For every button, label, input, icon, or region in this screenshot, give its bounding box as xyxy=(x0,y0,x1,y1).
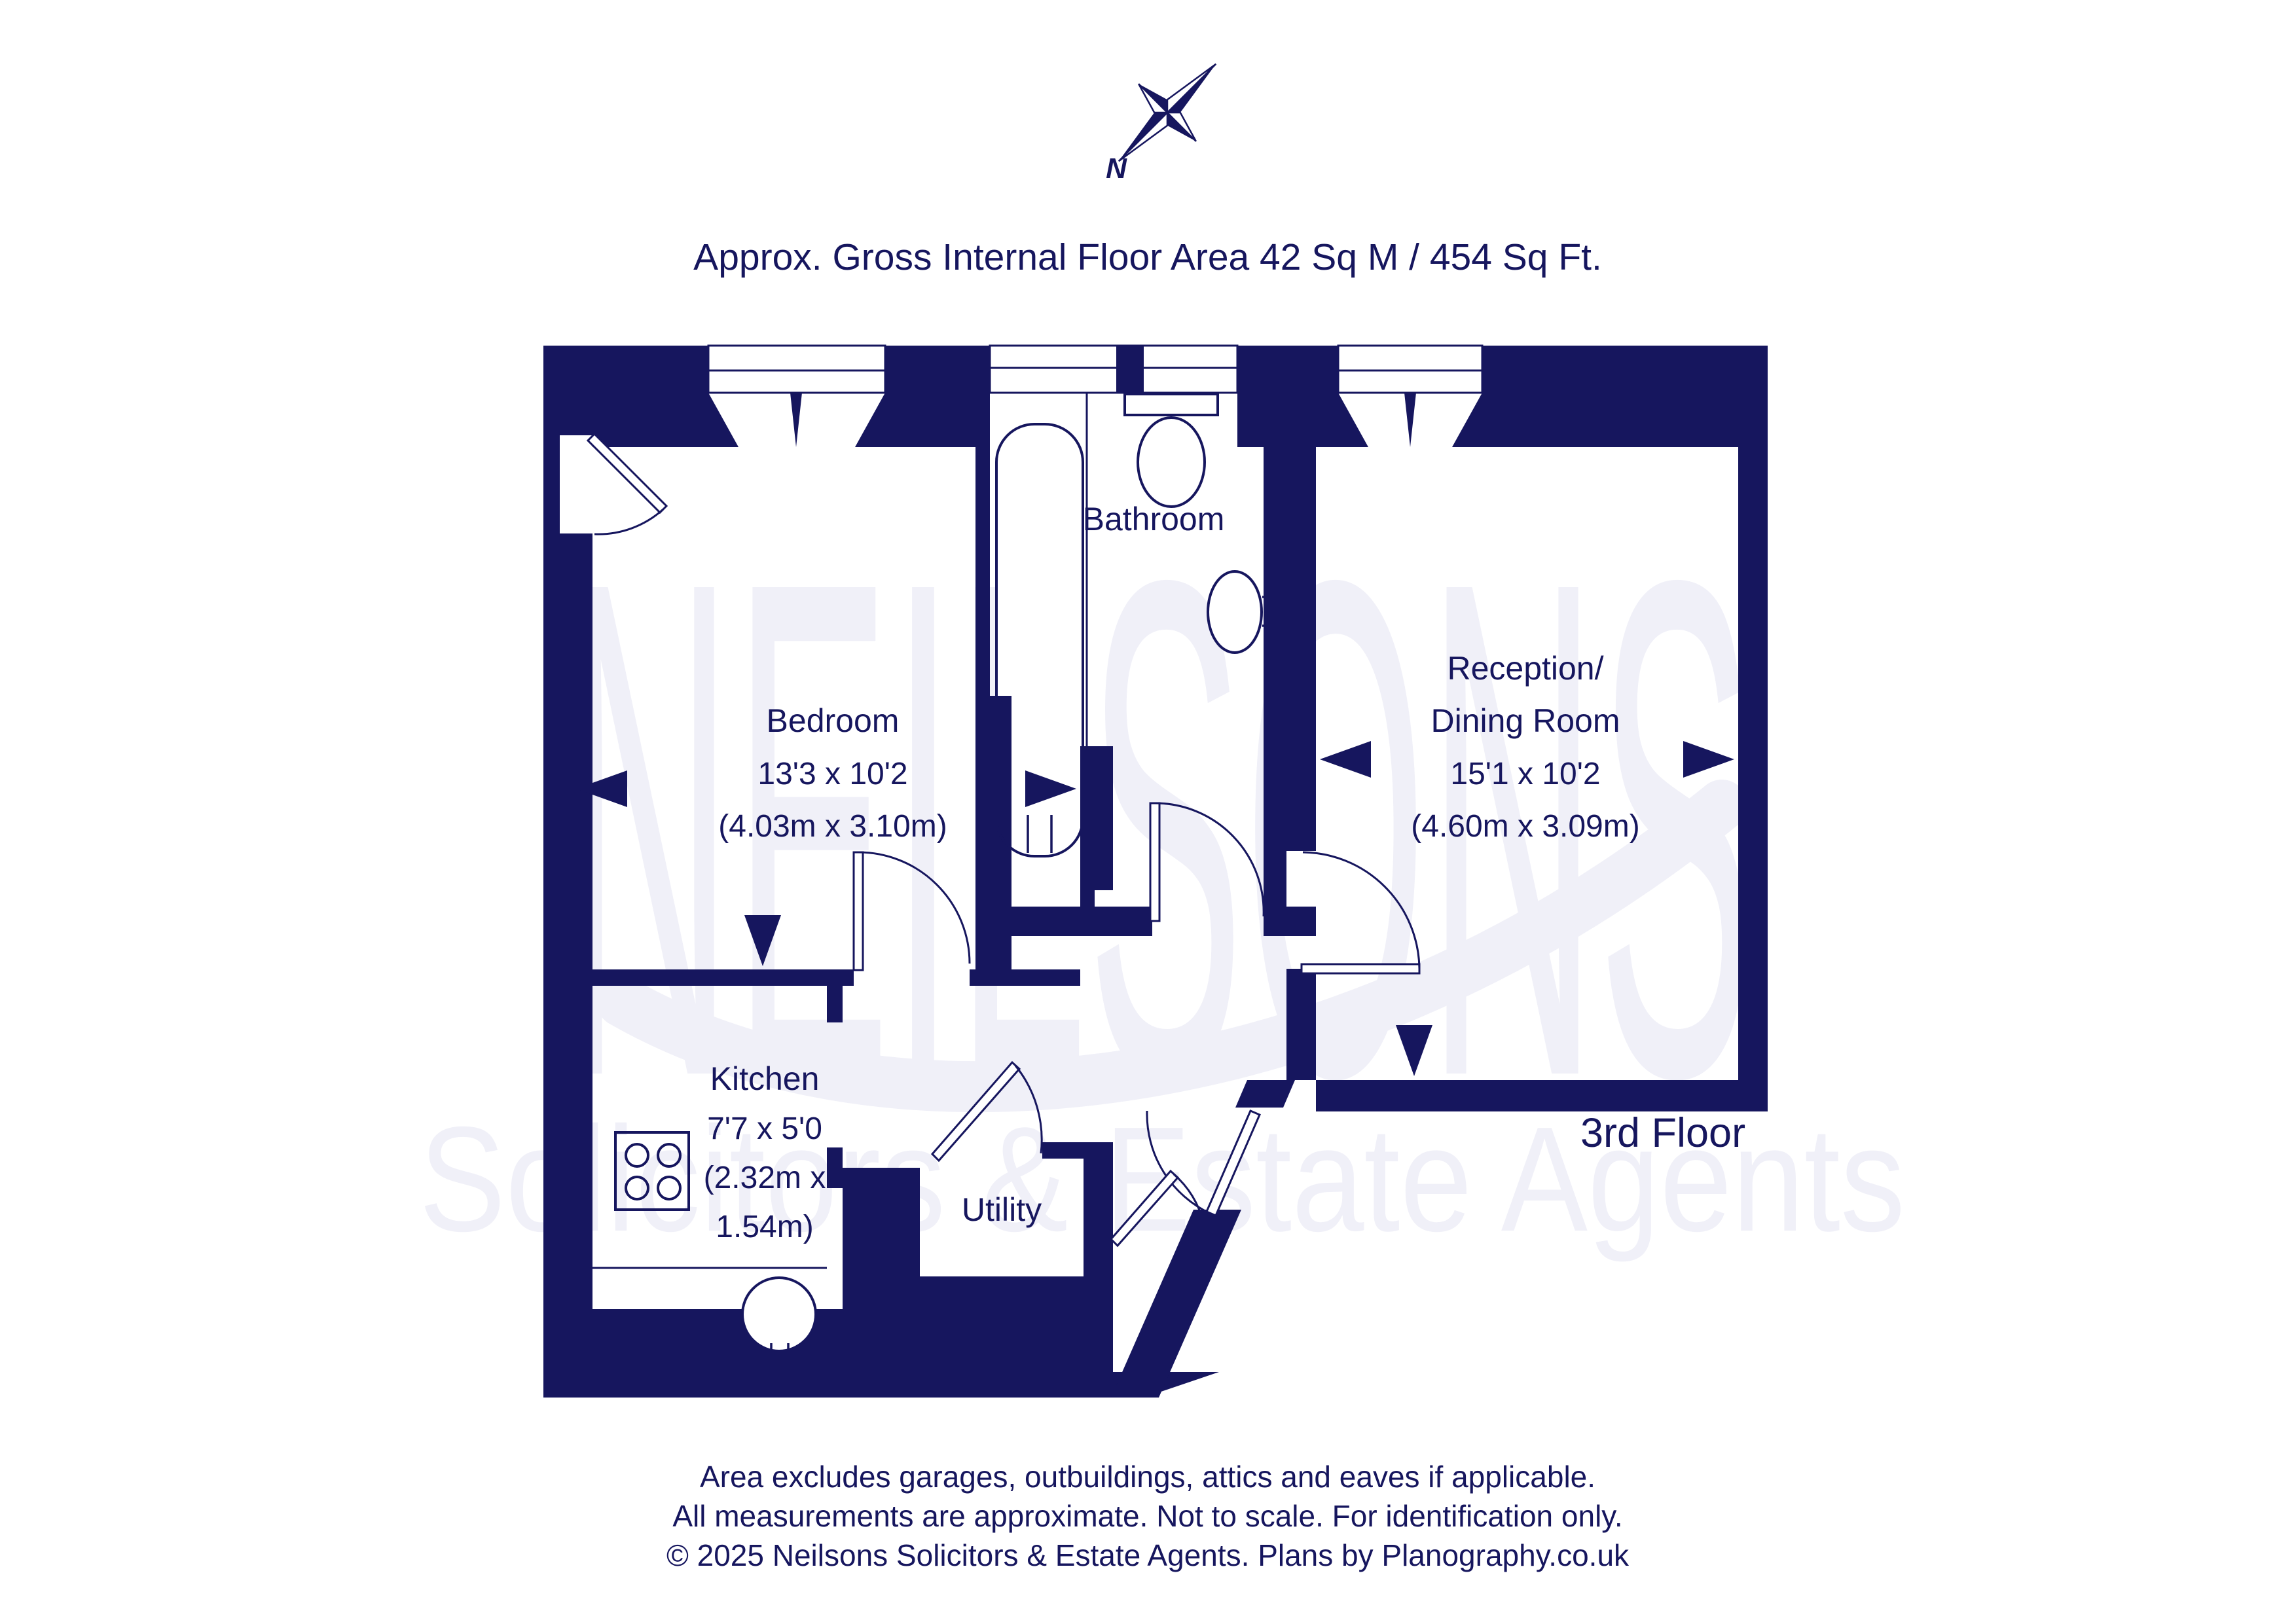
floorplan-page: NEILSONS Solicitors & Estate Agents N Ap… xyxy=(0,0,2296,1624)
bedroom-size-imperial: 13'3 x 10'2 xyxy=(757,757,907,791)
kitchen-label: Kitchen xyxy=(710,1060,820,1097)
windows xyxy=(708,346,1482,393)
kitchen-size-metric-line1: (2.32m x xyxy=(704,1161,826,1195)
compass-north-label: N xyxy=(1106,153,1127,185)
reception-label-line1: Reception/ xyxy=(1447,650,1603,687)
footer-line2: All measurements are approximate. Not to… xyxy=(672,1499,1622,1533)
page-title: Approx. Gross Internal Floor Area 42 Sq … xyxy=(693,236,1602,278)
reception-label-line2: Dining Room xyxy=(1430,702,1620,739)
footer: Area excludes garages, outbuildings, att… xyxy=(666,1460,1630,1572)
reception-size-imperial: 15'1 x 10'2 xyxy=(1450,757,1600,791)
kitchen-size-metric-line2: 1.54m) xyxy=(716,1210,813,1244)
bathroom-label: Bathroom xyxy=(1083,501,1225,537)
bathroom-window xyxy=(990,346,1237,393)
floor-label: 3rd Floor xyxy=(1580,1110,1745,1156)
floorplan-canvas: NEILSONS Solicitors & Estate Agents N Ap… xyxy=(0,0,2296,1624)
reception-size-metric: (4.60m x 3.09m) xyxy=(1411,809,1639,844)
bedroom-label: Bedroom xyxy=(767,702,900,739)
kitchen-size-imperial: 7'7 x 5'0 xyxy=(707,1111,822,1146)
reception-bay-window xyxy=(1338,346,1482,393)
footer-line1: Area excludes garages, outbuildings, att… xyxy=(700,1460,1595,1494)
utility-label: Utility xyxy=(962,1191,1042,1228)
footer-line3: © 2025 Neilsons Solicitors & Estate Agen… xyxy=(666,1538,1630,1572)
compass: N xyxy=(1090,35,1245,190)
bedroom-bay-window xyxy=(708,346,885,393)
bedroom-size-metric: (4.03m x 3.10m) xyxy=(718,809,947,844)
